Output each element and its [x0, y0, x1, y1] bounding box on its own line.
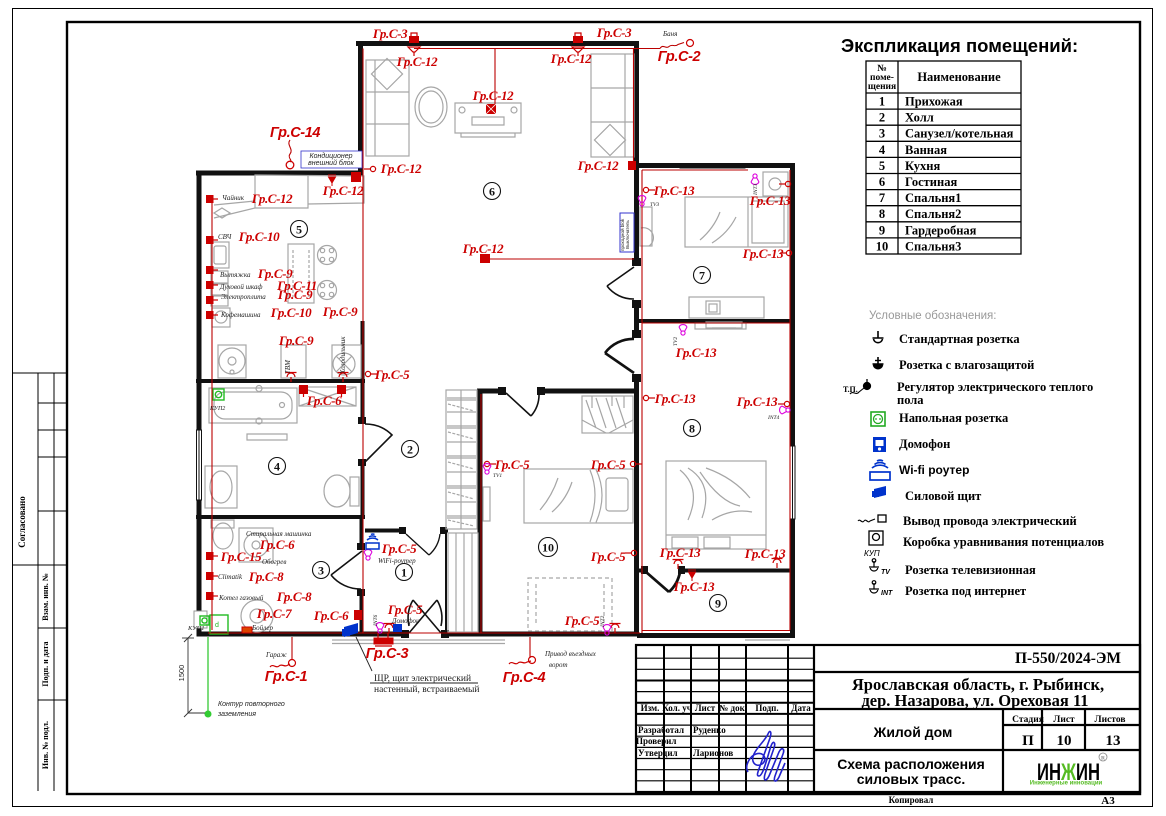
svg-text:Гр.С-9: Гр.С-9	[277, 287, 313, 302]
svg-text:TV2: TV2	[673, 337, 679, 346]
svg-text:Спальня1: Спальня1	[905, 191, 961, 205]
svg-text:пола: пола	[897, 393, 924, 407]
svg-text:10: 10	[1057, 733, 1072, 749]
svg-text:Гр.С-5: Гр.С-5	[590, 457, 626, 472]
svg-text:Стиральная машинка: Стиральная машинка	[246, 530, 312, 538]
svg-text:Кондиционер: Кондиционер	[309, 152, 352, 160]
svg-text:Коробка уравнивания потенциало: Коробка уравнивания потенциалов	[903, 535, 1104, 549]
svg-text:Контур повторного: Контур повторного	[218, 701, 285, 708]
svg-text:TV3: TV3	[650, 202, 659, 208]
svg-text:Гр.С-3: Гр.С-3	[366, 646, 409, 662]
svg-text:внешний блок: внешний блок	[308, 159, 354, 167]
svg-text:Согласовано: Согласовано	[17, 496, 27, 548]
svg-text:КУП: КУП	[864, 549, 880, 558]
svg-text:КУП1: КУП1	[187, 625, 205, 632]
svg-text:Прихожая: Прихожая	[905, 95, 963, 109]
svg-text:Гр.С-6: Гр.С-6	[306, 393, 342, 408]
svg-text:Дата: Дата	[791, 703, 811, 713]
svg-text:2: 2	[407, 443, 413, 457]
svg-text:Обогрев: Обогрев	[262, 558, 286, 566]
svg-text:Ларионов: Ларионов	[693, 748, 733, 758]
svg-text:Гр.С-12: Гр.С-12	[462, 241, 504, 256]
svg-text:Гр.С-13: Гр.С-13	[673, 579, 715, 594]
svg-text:Гр.С-12: Гр.С-12	[577, 158, 619, 173]
svg-text:8: 8	[689, 422, 695, 436]
svg-text:Гр.С-12: Гр.С-12	[251, 191, 293, 206]
svg-text:Гр.С-6: Гр.С-6	[259, 537, 295, 552]
svg-text:2: 2	[879, 111, 885, 125]
svg-text:Гр.С-10: Гр.С-10	[238, 229, 280, 244]
svg-text:Wi-fi роутер: Wi-fi роутер	[899, 463, 969, 477]
svg-text:заземления: заземления	[217, 711, 256, 718]
svg-text:Стадия: Стадия	[1012, 715, 1044, 725]
svg-text:Инв. № подл.: Инв. № подл.	[41, 721, 50, 769]
svg-text:ворот: ворот	[549, 661, 568, 669]
svg-text:9: 9	[715, 597, 721, 611]
svg-text:INT2: INT2	[600, 615, 606, 628]
svg-text:Гр.С-5: Гр.С-5	[387, 602, 423, 617]
svg-text:Гр.С-12: Гр.С-12	[322, 183, 364, 198]
svg-text:10: 10	[876, 239, 889, 253]
svg-text:Гр.С-13: Гр.С-13	[654, 391, 696, 406]
svg-text:Ванная: Ванная	[905, 143, 947, 157]
svg-text:Выключатель: Выключатель	[625, 220, 630, 249]
svg-text:Гр.С-3: Гр.С-3	[596, 25, 632, 40]
svg-text:4: 4	[274, 460, 280, 474]
svg-text:ЩР, щит электрический: ЩР, щит электрический	[374, 673, 471, 684]
svg-text:13: 13	[1106, 733, 1121, 749]
svg-text:Гараж: Гараж	[265, 651, 287, 659]
svg-text:ТВМ: ТВМ	[284, 359, 292, 374]
svg-text:Гр.С-12: Гр.С-12	[380, 161, 422, 176]
svg-text:Гр.С-9: Гр.С-9	[278, 333, 314, 348]
svg-text:Домофон: Домофон	[899, 437, 950, 451]
svg-text:TV1: TV1	[493, 473, 502, 479]
svg-text:Проверил: Проверил	[636, 736, 676, 746]
svg-text:Гр.С-9: Гр.С-9	[322, 304, 358, 319]
svg-text:Электроплита: Электроплита	[221, 293, 266, 301]
svg-text:А3: А3	[1101, 795, 1115, 807]
svg-text:Бойлер: Бойлер	[251, 624, 273, 632]
svg-text:Гр.С-10: Гр.С-10	[270, 305, 312, 320]
svg-text:Лист: Лист	[695, 703, 716, 713]
svg-text:Листов: Листов	[1095, 715, 1126, 725]
svg-text:силовых трасс.: силовых трасс.	[857, 771, 966, 787]
svg-text:КУП2: КУП2	[209, 406, 225, 412]
svg-text:10: 10	[542, 541, 554, 555]
svg-text:INT4: INT4	[767, 414, 780, 421]
svg-text:Кухня: Кухня	[905, 159, 940, 173]
svg-text:INT: INT	[881, 590, 893, 597]
svg-text:INT6: INT6	[373, 614, 379, 627]
svg-text:Гр.С-5: Гр.С-5	[494, 457, 530, 472]
svg-text:7: 7	[879, 191, 885, 205]
svg-text:Копировал: Копировал	[889, 795, 934, 805]
svg-text:5: 5	[296, 223, 302, 237]
svg-text:Утвердил: Утвердил	[638, 748, 678, 758]
svg-text:Гр.С-4: Гр.С-4	[503, 670, 546, 686]
svg-text:Гр.С-13: Гр.С-13	[744, 546, 786, 561]
svg-text:Привод въездных: Привод въездных	[544, 650, 597, 658]
svg-text:№ док: № док	[719, 703, 745, 713]
svg-text:Лист: Лист	[1053, 715, 1075, 725]
svg-text:Духовой шкаф: Духовой шкаф	[219, 283, 262, 291]
svg-text:Гр.С-5: Гр.С-5	[381, 541, 417, 556]
svg-text:Кофемашина: Кофемашина	[220, 311, 261, 319]
svg-text:Силовой щит: Силовой щит	[905, 489, 981, 503]
svg-text:Наименование: Наименование	[917, 70, 1001, 84]
svg-text:6: 6	[879, 175, 885, 189]
svg-text:П-550/2024-ЭМ: П-550/2024-ЭМ	[1015, 650, 1121, 667]
svg-text:WiFi-роутер: WiFi-роутер	[378, 557, 416, 565]
svg-text:7: 7	[699, 269, 705, 283]
svg-text:Розетка под интернет: Розетка под интернет	[905, 584, 1026, 598]
svg-text:СВЧ: СВЧ	[218, 233, 233, 241]
svg-text:Гр.С-15: Гр.С-15	[220, 549, 262, 564]
svg-text:Гр.С-12: Гр.С-12	[550, 51, 592, 66]
svg-text:Разработал: Разработал	[638, 725, 684, 735]
svg-text:Изм.: Изм.	[641, 703, 660, 713]
svg-text:Climatik: Climatik	[218, 573, 243, 581]
svg-text:Розетка с влагозащитой: Розетка с влагозащитой	[899, 358, 1034, 372]
svg-text:Гр.С-8: Гр.С-8	[276, 589, 312, 604]
svg-text:Домофон: Домофон	[391, 617, 420, 625]
svg-text:Экспликация помещений:: Экспликация помещений:	[841, 35, 1078, 56]
svg-text:5: 5	[879, 159, 885, 173]
svg-text:Кол. уч: Кол. уч	[662, 703, 692, 713]
svg-text:Вывод провода электрический: Вывод провода электрический	[903, 514, 1077, 528]
svg-text:1: 1	[879, 95, 885, 109]
svg-text:Санузел/котельная: Санузел/котельная	[905, 127, 1014, 141]
svg-text:Гр.С-13: Гр.С-13	[742, 246, 784, 261]
svg-text:настенный, встраиваемый: настенный, встраиваемый	[374, 684, 480, 695]
svg-text:1: 1	[401, 566, 407, 580]
svg-text:Подп.: Подп.	[755, 703, 778, 713]
svg-text:INT3: INT3	[753, 183, 759, 196]
svg-text:4: 4	[879, 143, 886, 157]
svg-text:Гр.С-1: Гр.С-1	[265, 669, 308, 685]
svg-text:Холодильник: Холодильник	[339, 336, 347, 375]
svg-text:Котел газовый: Котел газовый	[218, 594, 264, 602]
svg-text:Гр.С-12: Гр.С-12	[396, 54, 438, 69]
svg-text:Регулятор электрического тепло: Регулятор электрического теплого	[897, 380, 1093, 394]
svg-text:Условные обозначения:: Условные обозначения:	[869, 310, 996, 322]
svg-text:Гардеробная: Гардеробная	[905, 223, 977, 237]
svg-text:Гр.С-5: Гр.С-5	[564, 613, 600, 628]
svg-text:6: 6	[489, 185, 495, 199]
svg-text:Гр.С-8: Гр.С-8	[248, 569, 284, 584]
svg-text:Гр.С-12: Гр.С-12	[472, 88, 514, 103]
svg-text:Баня: Баня	[662, 30, 677, 38]
svg-text:Т.П.: Т.П.	[843, 385, 858, 394]
svg-text:Гр.С-5: Гр.С-5	[590, 549, 626, 564]
svg-text:8: 8	[879, 207, 885, 221]
svg-text:проходной blok: проходной blok	[619, 218, 625, 251]
svg-text:TV: TV	[881, 569, 891, 576]
svg-text:Гр.С-6: Гр.С-6	[313, 608, 349, 623]
svg-text:Гр.С-7: Гр.С-7	[256, 606, 292, 621]
svg-text:Гр.С-14: Гр.С-14	[270, 125, 320, 141]
svg-text:Взам. инв. №: Взам. инв. №	[41, 573, 50, 621]
svg-text:Подп. и дата: Подп. и дата	[41, 641, 50, 686]
svg-text:Гр.С-13: Гр.С-13	[675, 345, 717, 360]
svg-text:Стандартная розетка: Стандартная розетка	[899, 332, 1020, 346]
svg-text:d: d	[215, 622, 219, 629]
svg-text:3: 3	[318, 564, 324, 578]
svg-text:Гр.С-13: Гр.С-13	[653, 183, 695, 198]
svg-text:дер. Назарова, ул. Ореховая 11: дер. Назарова, ул. Ореховая 11	[861, 691, 1088, 710]
svg-text:Вытяжка: Вытяжка	[220, 271, 251, 279]
svg-text:Холл: Холл	[905, 111, 934, 125]
svg-text:Спальня2: Спальня2	[905, 207, 961, 221]
svg-text:щения: щения	[868, 82, 896, 92]
svg-text:Гостиная: Гостиная	[905, 175, 957, 189]
svg-text:Спальня3: Спальня3	[905, 239, 961, 253]
svg-text:Жилой дом: Жилой дом	[873, 724, 953, 740]
svg-text:Напольная розетка: Напольная розетка	[899, 411, 1009, 425]
svg-text:Гр.С-13: Гр.С-13	[736, 394, 778, 409]
svg-text:1500: 1500	[177, 665, 186, 682]
svg-text:Инженерные инновации: Инженерные инновации	[1030, 781, 1103, 787]
svg-text:Схема расположения: Схема расположения	[837, 756, 985, 772]
svg-text:П: П	[1022, 733, 1034, 749]
svg-text:Чайник: Чайник	[222, 194, 245, 202]
svg-text:Розетка телевизионная: Розетка телевизионная	[905, 563, 1036, 577]
svg-text:Гр.С-5: Гр.С-5	[374, 367, 410, 382]
svg-text:3: 3	[879, 127, 885, 141]
svg-text:Гр.С-13: Гр.С-13	[659, 545, 701, 560]
svg-text:Руденко: Руденко	[693, 725, 726, 735]
svg-text:Гр.С-3: Гр.С-3	[372, 26, 408, 41]
svg-text:9: 9	[879, 223, 885, 237]
svg-text:Гр.С-2: Гр.С-2	[658, 49, 701, 65]
